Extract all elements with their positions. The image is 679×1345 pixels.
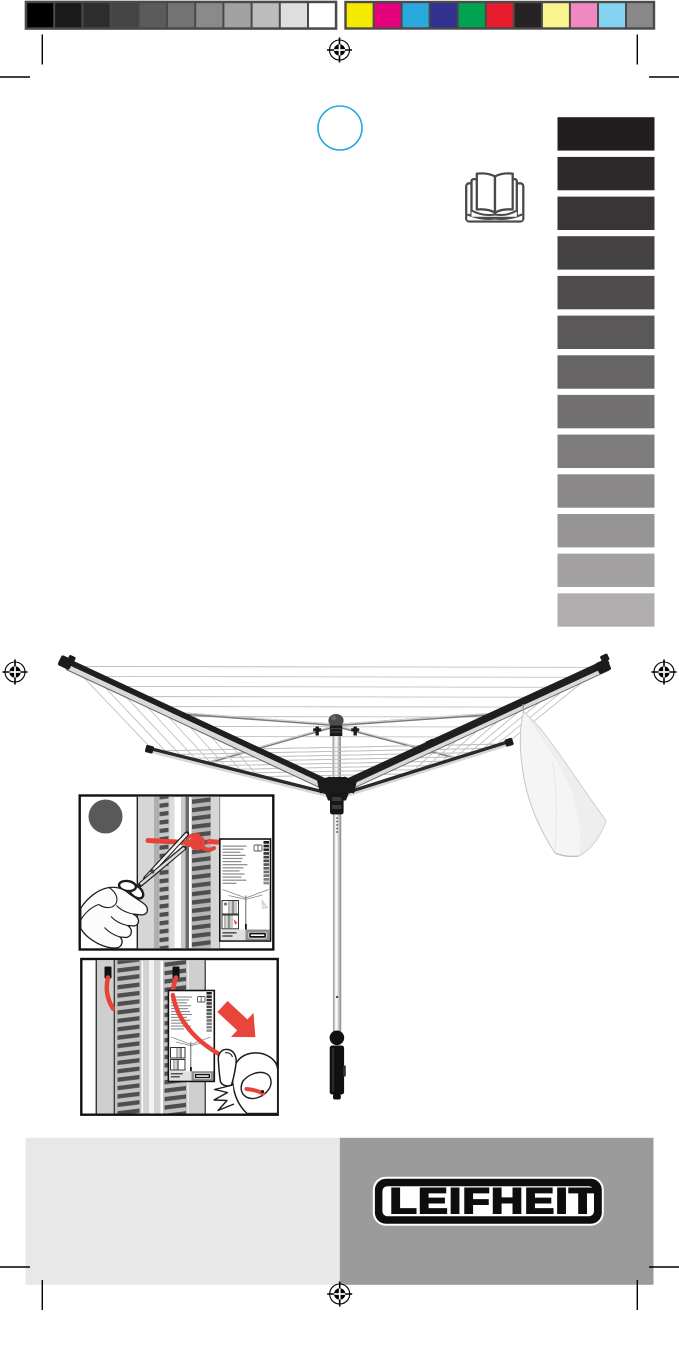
svg-text:LEIFHEIT: LEIFHEIT (390, 1182, 598, 1221)
